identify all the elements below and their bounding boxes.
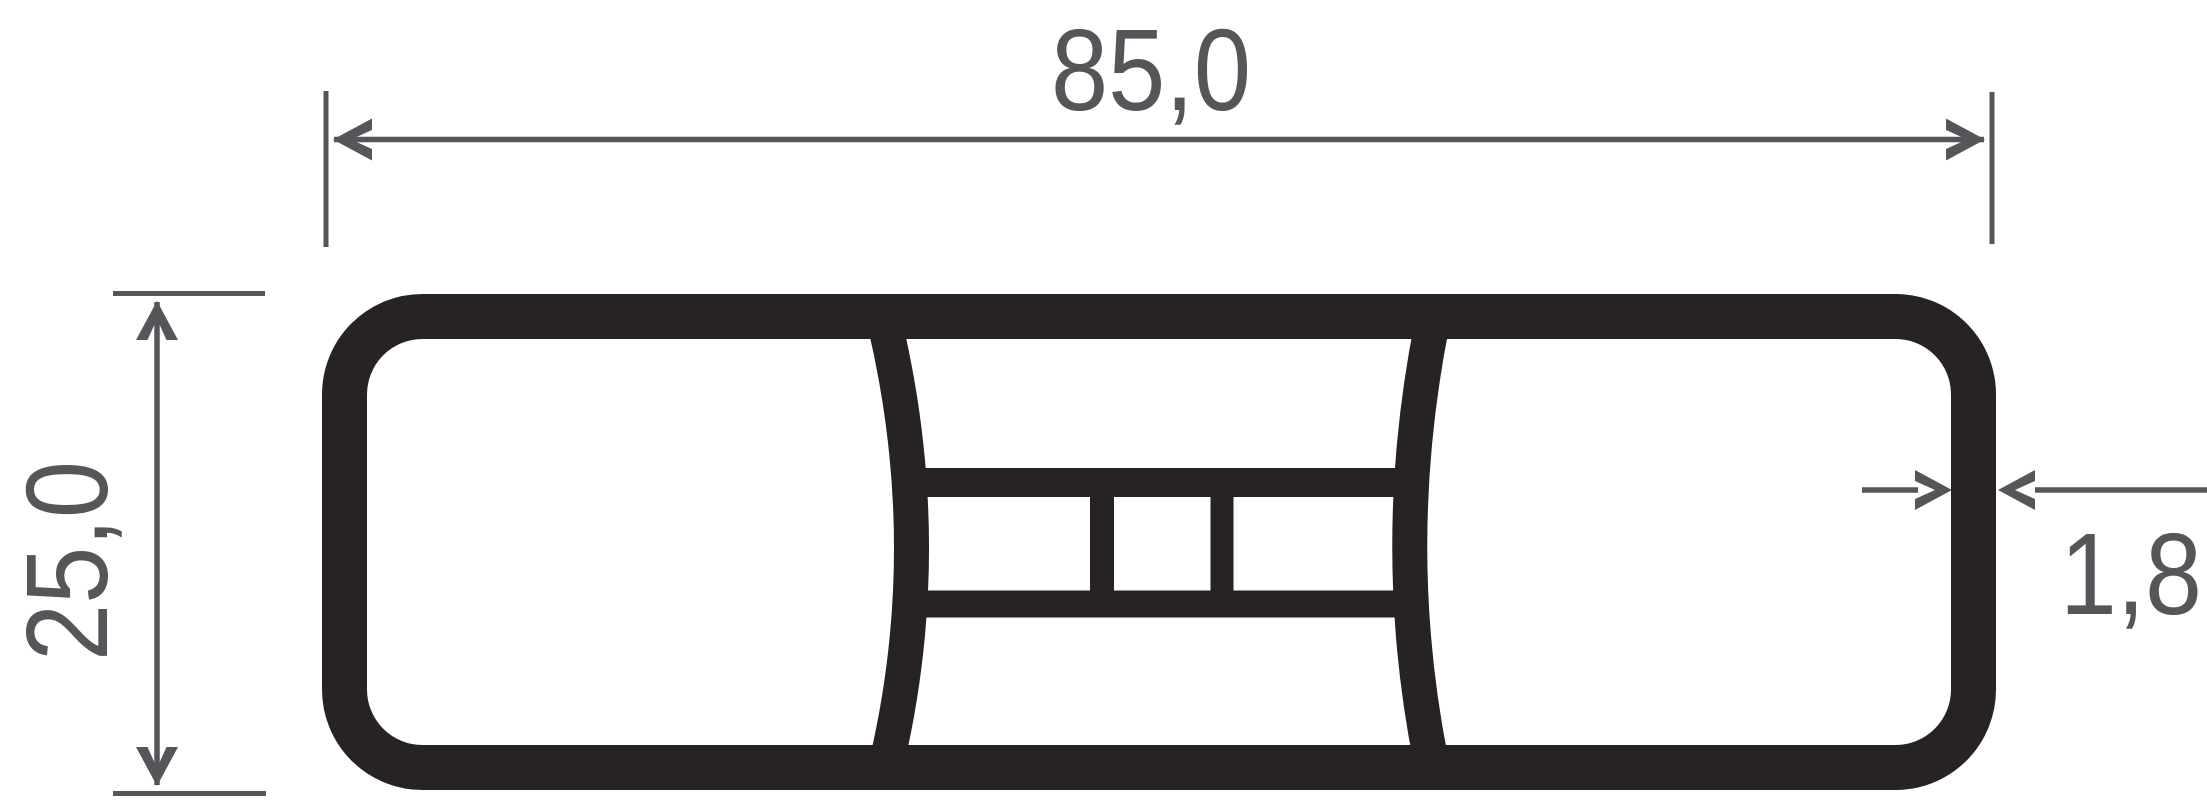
svg-text:25,0: 25,0 bbox=[2, 461, 132, 661]
svg-text:85,0: 85,0 bbox=[1051, 5, 1251, 135]
svg-text:1,8: 1,8 bbox=[2060, 509, 2202, 639]
